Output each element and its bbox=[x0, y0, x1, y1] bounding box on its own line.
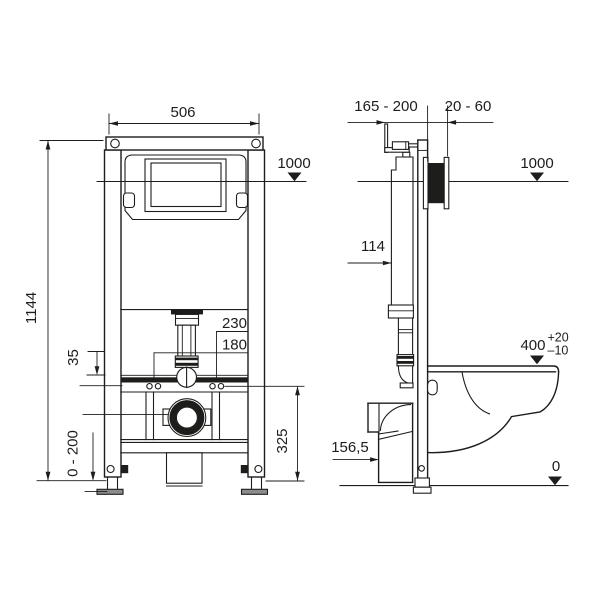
outlet-box bbox=[167, 453, 203, 483]
leg-pin-hole bbox=[107, 466, 114, 473]
side-cistern-profile bbox=[388, 152, 413, 388]
dim-front-height: 1144 bbox=[23, 141, 106, 481]
dim-front-width: 506 bbox=[109, 104, 259, 134]
side-wall-bracket bbox=[385, 124, 418, 152]
cistern-side-clip bbox=[237, 193, 248, 208]
fill-valve-cap bbox=[403, 152, 410, 157]
cistern-side-clip bbox=[124, 193, 135, 208]
side-waste-elbow bbox=[368, 403, 413, 482]
flush-pipe-flange bbox=[400, 383, 413, 388]
fixing-hole bbox=[210, 384, 215, 389]
dim-side-bowl-height: 400 +20 –10 bbox=[520, 331, 568, 365]
dim-side-tol-minus: –10 bbox=[548, 344, 569, 358]
dim-side-1000: 1000 bbox=[520, 155, 553, 172]
fixing-hole bbox=[218, 384, 223, 389]
level-marker-triangle bbox=[548, 477, 562, 486]
dim-front-hole-spacing: 230 180 bbox=[154, 315, 248, 381]
side-bellows bbox=[423, 157, 448, 208]
fixing-hole bbox=[155, 384, 160, 389]
dim-front-230-label: 230 bbox=[222, 315, 247, 332]
leg-pin-hole bbox=[255, 466, 262, 473]
dim-front-width-label: 506 bbox=[170, 104, 195, 121]
dim-side-114-label: 114 bbox=[361, 238, 385, 255]
wc-frame-drawing: 1000 bbox=[0, 0, 600, 600]
dim-side-114: 114 bbox=[348, 238, 391, 265]
leg-clamp bbox=[241, 465, 249, 473]
leg-clamp bbox=[121, 465, 129, 473]
level-marker-triangle bbox=[530, 356, 544, 365]
dim-front-leg-range-label: 0 - 200 bbox=[65, 430, 82, 477]
dim-front-180-label: 180 bbox=[222, 337, 247, 354]
dim-side-bracket-label: 165 - 200 bbox=[354, 98, 417, 115]
dim-front-height-label: 1144 bbox=[23, 292, 40, 324]
dim-front-1000: 1000 bbox=[277, 155, 310, 172]
front-fixing-bar bbox=[121, 367, 248, 389]
mounting-hole bbox=[252, 139, 261, 148]
side-view: 1000 165 - 200 20 - 60 114 400 +20 –10 bbox=[331, 98, 569, 493]
mounting-hole bbox=[111, 139, 120, 148]
front-view: 1000 bbox=[23, 104, 311, 494]
leg-pin-hole bbox=[419, 466, 425, 472]
access-window-inner bbox=[151, 163, 221, 207]
foot-plate bbox=[242, 489, 268, 494]
dim-front-325-label: 325 bbox=[274, 428, 291, 453]
dim-side-outlet-offset: 156,5 bbox=[331, 439, 378, 462]
dim-front-35-label: 35 bbox=[65, 349, 82, 366]
level-marker-triangle bbox=[288, 173, 302, 182]
dim-front-leg-range: 0 - 200 bbox=[65, 430, 108, 491]
bowl-inlet-spigot bbox=[428, 380, 438, 395]
front-legs bbox=[97, 442, 268, 494]
dim-side-156-label: 156,5 bbox=[331, 439, 369, 456]
dim-side-tol-plus: +20 bbox=[548, 331, 569, 345]
flush-bend-flange bbox=[171, 310, 203, 315]
fixing-hole bbox=[147, 384, 152, 389]
dim-side-400-label: 400 bbox=[520, 337, 545, 354]
dim-side-0-label: 0 bbox=[552, 458, 560, 475]
dim-side-wall-label: 20 - 60 bbox=[445, 98, 492, 115]
side-foot bbox=[413, 478, 431, 493]
technical-drawing-canvas: 1000 bbox=[0, 0, 600, 600]
front-cistern bbox=[124, 155, 248, 220]
access-window-outer bbox=[145, 159, 226, 212]
level-marker-triangle bbox=[530, 173, 544, 182]
side-toilet-bowl bbox=[428, 366, 559, 453]
